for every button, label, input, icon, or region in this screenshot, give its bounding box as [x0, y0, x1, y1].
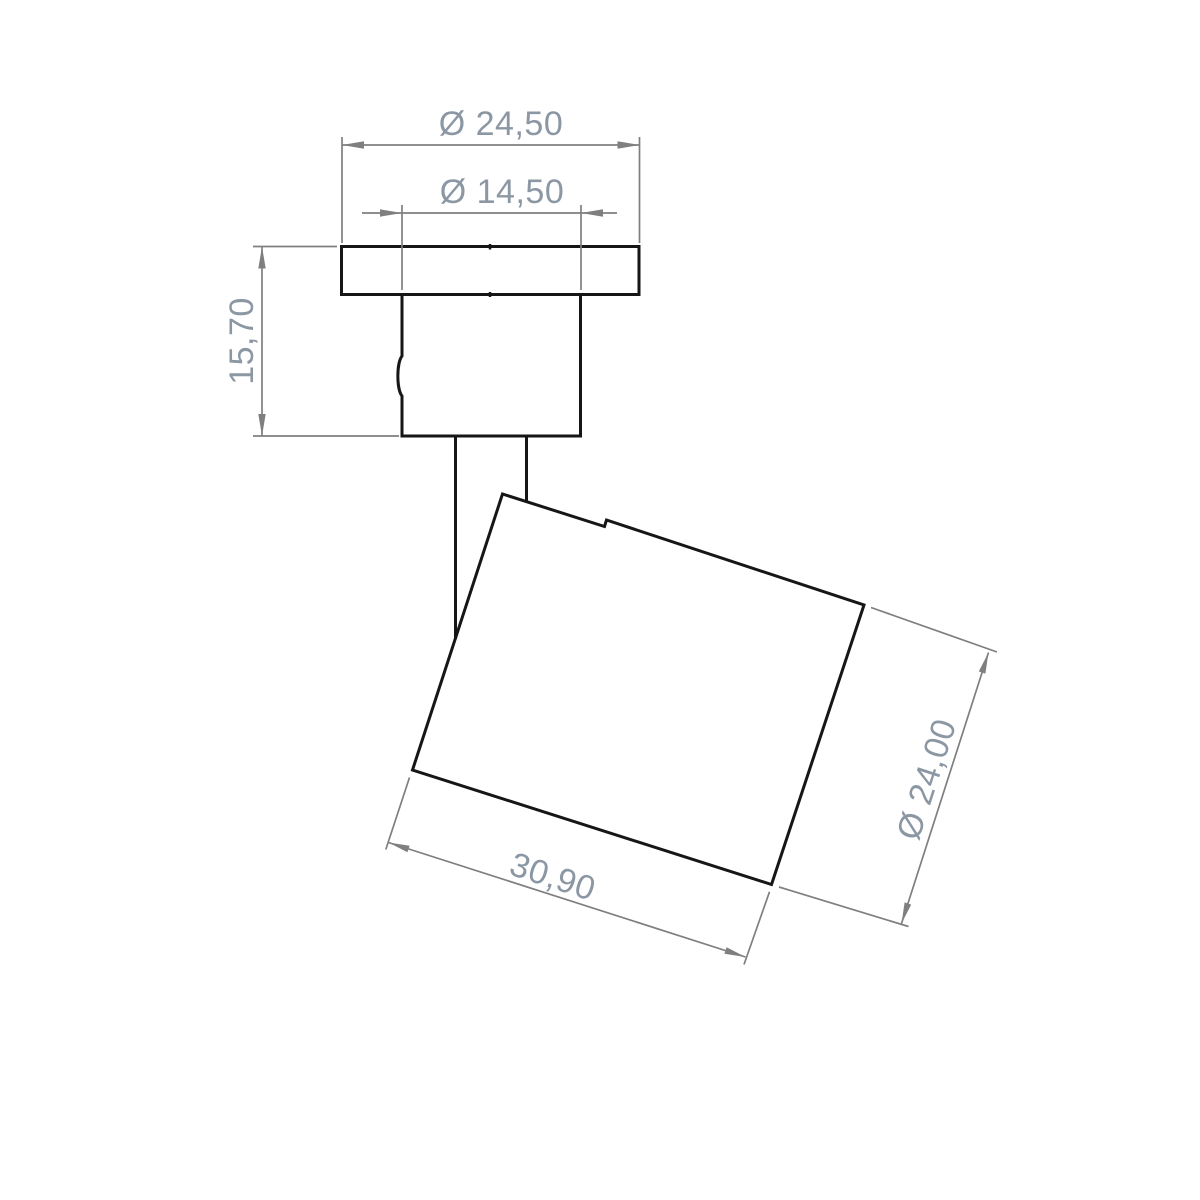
dimension-label-neck-diameter: Ø 14,50: [440, 173, 564, 211]
dimension-label-mount-height: 15,70: [223, 297, 261, 385]
extension-line-left: [386, 778, 410, 850]
arrowhead-right: [724, 947, 745, 957]
arrowhead-right: [581, 209, 603, 216]
arrowhead-left: [380, 209, 402, 216]
stem-outline: [398, 295, 581, 437]
part-outline: [342, 244, 865, 885]
drawing-canvas: Ø 24,50 Ø 14,50 15,70 30,90: [0, 0, 1200, 1200]
arrowhead-top: [258, 247, 265, 269]
dimension-head-length: 30,90: [386, 778, 770, 965]
arrowhead-bottom: [258, 414, 265, 436]
dimension-label-head-length: 30,90: [505, 845, 600, 908]
arrowhead-bottom: [902, 902, 912, 923]
arrowhead-right: [618, 141, 640, 148]
dimension-label-flange-diameter: Ø 24,50: [439, 105, 563, 143]
extension-line-bottom: [779, 887, 909, 927]
arrowhead-top: [979, 653, 989, 674]
technical-drawing: Ø 24,50 Ø 14,50 15,70 30,90: [0, 0, 1200, 1200]
dimension-neck-diameter: Ø 14,50: [362, 173, 617, 290]
extension-line-top: [871, 608, 997, 653]
extension-line-right: [744, 892, 770, 965]
arrowhead-left: [342, 141, 364, 148]
arrowhead-left: [389, 843, 410, 853]
dimension-mount-height: 15,70: [223, 247, 399, 437]
dimension-label-head-diameter: Ø 24,00: [890, 714, 965, 844]
head-outline: [413, 494, 865, 885]
flange-outline: [342, 247, 640, 295]
